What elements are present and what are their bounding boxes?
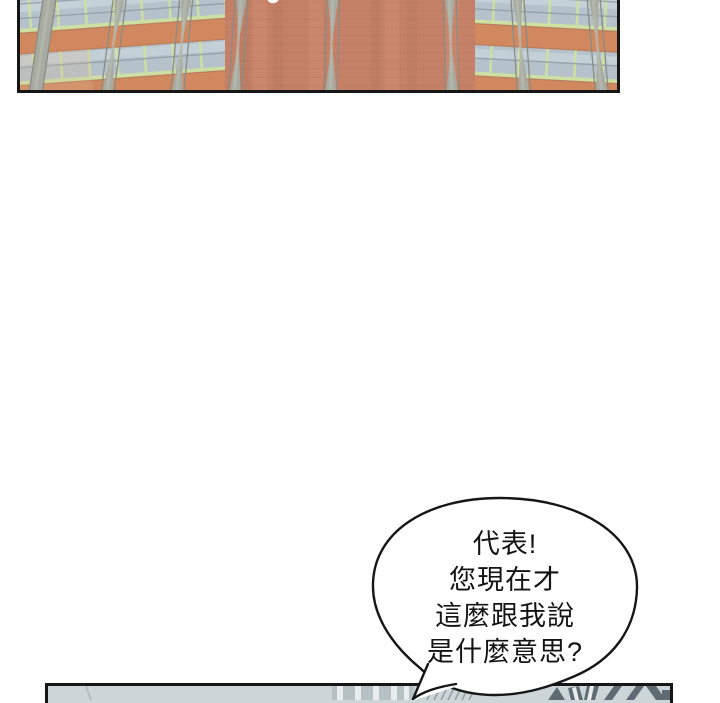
speech-line: 您現在才 [378, 562, 632, 598]
top-panel-building [17, 0, 620, 93]
speech-line: 代表! [378, 526, 632, 562]
brick-wall [225, 0, 475, 90]
building-facade-art [20, 0, 617, 90]
speech-line: 是什麼意思? [378, 634, 632, 670]
speech-bubble-text: 代表! 您現在才 這麼跟我說 是什麼意思? [378, 526, 632, 670]
speech-line: 這麼跟我說 [378, 598, 632, 634]
